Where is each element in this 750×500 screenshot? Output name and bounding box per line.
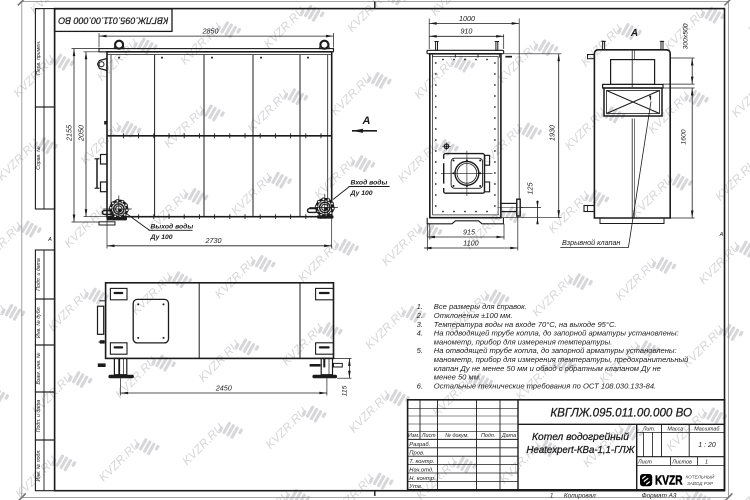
svg-text:Формат А3: Формат А3 [642,493,677,500]
svg-text:Разраб.: Разраб. [409,442,430,448]
svg-text:Справ. №: Справ. № [36,146,42,170]
svg-text:Листов: Листов [671,460,692,466]
svg-text:3.: 3. [417,320,423,329]
svg-text:2730: 2730 [205,236,222,245]
svg-text:№ докум.: № докум. [445,433,469,439]
svg-text:Т. контр.: Т. контр. [409,459,434,465]
svg-text:Инв. № дубл.: Инв. № дубл. [36,306,42,338]
svg-text:6.: 6. [417,381,423,390]
svg-text:Heatexpert-КВа-1,1-ГЛЖ: Heatexpert-КВа-1,1-ГЛЖ [527,445,636,456]
svg-text:1: 1 [705,460,708,466]
svg-text:Выход воды: Выход воды [151,222,194,230]
svg-text:Подп. и дата: Подп. и дата [36,258,42,291]
svg-text:манометр, прибор для измерения: манометр, прибор для измерения температу… [434,355,689,364]
svg-text:1.: 1. [417,302,423,311]
svg-text:1 : 20: 1 : 20 [698,442,716,449]
svg-text:А: А [362,115,371,127]
svg-text:КВГЛЖ.095.011.00.000 ВО: КВГЛЖ.095.011.00.000 ВО [58,16,168,26]
svg-text:Все размеры для справок.: Все размеры для справок. [434,302,527,311]
svg-text:Масштаб: Масштаб [694,426,720,432]
svg-text:КВГЛЖ.095.011.00.000 ВО: КВГЛЖ.095.011.00.000 ВО [550,406,692,419]
svg-text:А: А [630,28,638,39]
svg-text:1930: 1930 [548,125,557,141]
svg-text:Остальные технические требован: Остальные технические требования по ОСТ … [434,381,656,390]
svg-text:915: 915 [463,227,476,236]
svg-text:1600: 1600 [681,129,688,144]
svg-text:1100: 1100 [463,238,478,247]
svg-text:1: 1 [550,493,554,500]
svg-text:910: 910 [460,27,472,36]
svg-text:Масса: Масса [667,426,683,432]
svg-text:115: 115 [341,385,348,396]
svg-text:Взам. инв. №: Взам. инв. № [36,352,42,384]
svg-text:А: А [47,237,52,243]
svg-text:Перв. примен.: Перв. примен. [36,41,42,75]
svg-text:Изм.: Изм. [408,433,420,439]
svg-text:Вход воды: Вход воды [351,178,388,186]
svg-text:На отводящей трубе котла, до з: На отводящей трубе котла, до запорной ар… [434,346,677,355]
svg-text:Подп.: Подп. [481,433,495,439]
svg-text:1000: 1000 [459,14,475,23]
svg-text:манометр, прибор для измерения: манометр, прибор для измерения температу… [434,337,612,346]
svg-text:клапан Ду не менее 50 мм и обв: клапан Ду не менее 50 мм и обвод с обрат… [434,364,661,373]
svg-text:2.: 2. [416,311,423,320]
svg-text:Лист: Лист [421,433,436,439]
svg-text:КОТЕЛЬНЫЙ: КОТЕЛЬНЫЙ [686,473,716,480]
svg-text:Дата: Дата [501,433,516,439]
svg-text:2850: 2850 [202,27,219,36]
svg-text:125: 125 [526,182,535,195]
svg-text:Лит.: Лит. [642,426,656,432]
svg-text:Копировал: Копировал [564,493,596,500]
svg-text:Взрывной клапан: Взрывной клапан [562,238,620,247]
svg-text:5.: 5. [417,346,423,355]
svg-text:А: А [719,232,724,238]
svg-text:Н. контр.: Н. контр. [409,476,435,482]
svg-text:Ду 100: Ду 100 [150,234,173,241]
svg-text:Ду 100: Ду 100 [350,190,373,197]
svg-text:Отклонения ±100 мм.: Отклонения ±100 мм. [434,311,513,320]
svg-text:KVZR: KVZR [655,472,683,487]
svg-text:Инв. № подл.: Инв. № подл. [36,449,42,481]
svg-text:2450: 2450 [215,383,232,392]
svg-text:Температура воды на входе 70°С: Температура воды на входе 70°С, на выход… [434,320,617,329]
svg-text:На подводящей трубе котла, до: На подводящей трубе котла, до запорной а… [434,329,679,338]
svg-text:Лист: Лист [637,460,652,466]
svg-text:Котел водогрейный: Котел водогрейный [532,432,629,443]
svg-text:300x500: 300x500 [683,23,690,49]
svg-text:2155: 2155 [64,124,73,142]
svg-text:Утв.: Утв. [408,484,422,490]
svg-text:менее 50 мм.: менее 50 мм. [434,373,481,382]
svg-text:Нач.отд.: Нач.отд. [409,467,433,473]
svg-text:2050: 2050 [76,125,85,142]
svg-text:ЗАВОД РЭР: ЗАВОД РЭР [687,481,714,486]
svg-text:4.: 4. [417,329,423,338]
svg-text:Подп. и дата: Подп. и дата [36,400,42,433]
svg-text:Пров.: Пров. [409,451,424,457]
